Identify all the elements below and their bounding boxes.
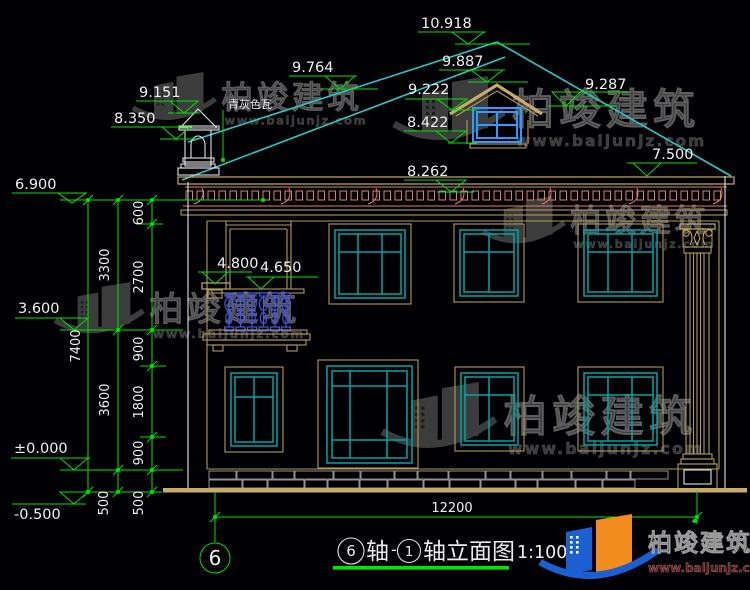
elevation-drawing: 柏竣建筑 www.baijunjz.com (0, 0, 750, 590)
dim-900-top: 900 (132, 337, 147, 362)
elevation-marker-balcony-rail-part: 4.650 (260, 260, 302, 276)
elevation-marker-eave-right-part: 7.500 (652, 147, 694, 163)
window-2f-2 (454, 224, 524, 302)
dim-node-dot (116, 198, 120, 202)
logo-building-windows-part (576, 536, 579, 539)
elevation-marker-ground-part: -0.500 (14, 507, 61, 523)
dim-node-dot (150, 222, 154, 226)
elevation-marker-cupola-top-part: 9.151 (139, 85, 181, 101)
logo-url: www.baijunjz.com (648, 561, 750, 575)
dim-node-dot (116, 490, 120, 494)
elevation-marker-cornice-part: 6.900 (15, 177, 57, 193)
elevation-marker-floor0-part: ±0.000 (14, 441, 68, 457)
title-underline (333, 566, 509, 570)
dim-500-right: 500 (132, 491, 147, 516)
dim-node-dot (693, 519, 697, 523)
logo-building-windows-part (570, 551, 573, 554)
elevation-marker-roof-left-part: 9.222 (408, 82, 450, 98)
dim-1800: 1800 (132, 385, 147, 418)
axis-bubble-number: 6 (209, 546, 222, 570)
roof-material-label: 青灰色瓦 (228, 97, 272, 111)
title-suffix: 轴立面图 (423, 539, 515, 565)
logo-building-windows-part (570, 546, 573, 549)
ground-line (163, 488, 747, 493)
dim-node-dot (213, 515, 217, 519)
dim-node-dot (695, 515, 699, 519)
dim-node-dot (150, 328, 154, 332)
elevation-marker-peak-part: 10.918 (421, 16, 472, 32)
cad-elevation-screenshot: 柏竣建筑 www.baijunjz.com (0, 0, 750, 590)
dim-600: 600 (132, 201, 147, 226)
dim-node-dot (221, 158, 225, 162)
logo-building-windows-part (576, 541, 579, 544)
logo-building-windows-part (576, 546, 579, 549)
elevation-marker-dormer-ridge-part: 9.887 (442, 54, 484, 70)
elevation-marker-dormer-sill-part: 8.422 (407, 115, 449, 131)
dim-500-left: 500 (97, 491, 112, 516)
logo-building-icon (566, 527, 592, 575)
dim-overall-height: 7400 (69, 329, 84, 362)
dim-node-dot (150, 490, 154, 494)
elevation-marker-floor2-part: 3.600 (18, 301, 60, 317)
elevation-marker-cupola-mid-part: 8.350 (114, 111, 156, 127)
dim-lower-floor: 3600 (98, 383, 113, 416)
dim-node-dot (116, 468, 120, 472)
elevation-marker-ledge-part: 4.800 (217, 256, 259, 272)
elevation-marker-roof-right-part: 9.287 (585, 77, 627, 93)
title-axis-from: 6 (346, 542, 356, 560)
logo-building-icon (596, 514, 632, 572)
dim-node-dot (150, 468, 154, 472)
dim-node-dot (150, 364, 154, 368)
window-1f-3 (455, 367, 524, 451)
logo-building-windows-part (576, 551, 579, 554)
dim-overall-width: 12200 (431, 501, 472, 516)
elevation-marker-eave-soffit-part: 8.262 (407, 164, 449, 180)
dim-node-dot (116, 328, 120, 332)
title-axis-to: 1 (405, 544, 414, 560)
title-zhou1: 轴 (366, 539, 389, 565)
logo-building-windows-part (570, 541, 573, 544)
title-dash: - (391, 540, 397, 559)
dim-upper-floor: 3300 (98, 248, 113, 281)
dim-2700: 2700 (132, 260, 147, 293)
dim-900-bottom: 900 (132, 441, 147, 466)
dim-node-dot (86, 198, 90, 202)
dim-node-dot (150, 435, 154, 439)
elevation-marker-roof-upper-left-part: 9.764 (292, 60, 334, 76)
dim-node-dot (261, 198, 265, 202)
dim-node-dot (150, 198, 154, 202)
logo-building-windows-part (570, 536, 573, 539)
logo-name: 柏竣建筑 (648, 529, 750, 557)
